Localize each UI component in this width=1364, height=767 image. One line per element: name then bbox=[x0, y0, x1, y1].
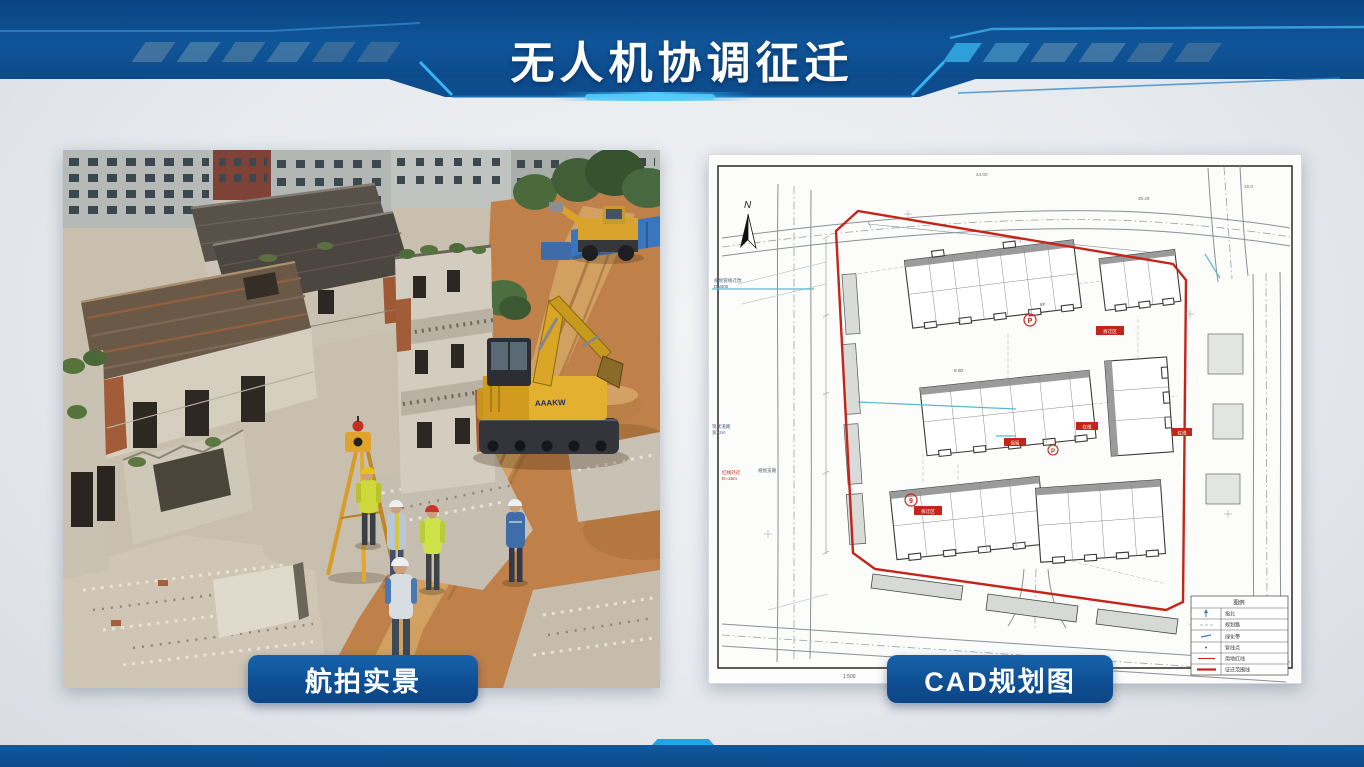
cad-plan-sheet: N bbox=[708, 154, 1302, 684]
footer-bar bbox=[0, 745, 1364, 767]
svg-text:红线: 红线 bbox=[1178, 430, 1187, 436]
page-title: 无人机协调征迁 bbox=[0, 27, 1364, 91]
caption-cad-label: CAD规划图 bbox=[924, 660, 1076, 699]
aerial-photo: AAAKW bbox=[63, 150, 660, 688]
north-label: N bbox=[744, 200, 752, 211]
svg-text:拆迁区: 拆迁区 bbox=[921, 508, 935, 515]
legend-title: 图例 bbox=[1233, 599, 1245, 607]
marker-p2: P bbox=[1051, 449, 1055, 455]
blue-tarp bbox=[541, 242, 571, 260]
svg-text:D=15m: D=15m bbox=[722, 476, 737, 481]
marker-p1: P bbox=[1028, 318, 1033, 325]
marker-box-1: 拆迁区 bbox=[1096, 326, 1124, 335]
svg-text:现状道路: 现状道路 bbox=[712, 423, 731, 430]
marker-box-2: 红线 bbox=[1076, 422, 1098, 430]
marker-box-5: 红线 bbox=[1172, 428, 1192, 436]
svg-text:规划管线迁改: 规划管线迁改 bbox=[714, 277, 742, 284]
svg-text:红线: 红线 bbox=[1083, 424, 1092, 430]
svg-text:宽12m: 宽12m bbox=[712, 429, 726, 436]
svg-text:18.0: 18.0 bbox=[1244, 184, 1253, 189]
svg-text:保留: 保留 bbox=[1011, 440, 1020, 447]
marker-num: 9 bbox=[909, 498, 913, 505]
building-4 bbox=[1105, 357, 1173, 456]
caption-cad: CAD规划图 bbox=[887, 655, 1113, 703]
legend-row-label: 规划路 bbox=[1225, 622, 1240, 629]
caption-aerial: 航拍实景 bbox=[248, 655, 478, 703]
caption-aerial-label: 航拍实景 bbox=[305, 660, 421, 699]
legend-row-label: 用地红线 bbox=[1225, 656, 1245, 663]
header-glow bbox=[555, 92, 755, 101]
legend-row-label: 管线点 bbox=[1225, 645, 1240, 652]
excavator-brand-label: AAAKW bbox=[535, 398, 566, 408]
legend: 图例 指北 规划路 绿化带 管线点 用地红线 征迁范围线 bbox=[1191, 596, 1288, 675]
cad-plan: N bbox=[708, 154, 1302, 684]
aerial-photo-scene: AAAKW bbox=[63, 150, 660, 688]
svg-text:DN300: DN300 bbox=[714, 284, 729, 289]
marker-box-3: 保留 bbox=[1004, 438, 1026, 447]
legend-row-label: 征迁范围线 bbox=[1225, 667, 1250, 674]
svg-text:35.26: 35.26 bbox=[1138, 196, 1150, 201]
header-glow-core bbox=[585, 94, 715, 100]
svg-text:规划支路: 规划支路 bbox=[758, 467, 777, 474]
svg-text:6F: 6F bbox=[1040, 302, 1046, 307]
svg-text:拆迁区: 拆迁区 bbox=[1103, 328, 1117, 335]
building-5 bbox=[890, 476, 1046, 561]
scale-note: 1:500 bbox=[843, 674, 856, 680]
svg-text:红线外迁: 红线外迁 bbox=[722, 469, 741, 476]
legend-row-label: 绿化带 bbox=[1225, 634, 1240, 641]
marker-box-4: 拆迁区 bbox=[914, 506, 942, 515]
svg-text:24.00: 24.00 bbox=[976, 172, 988, 177]
legend-row-label: 指北 bbox=[1225, 611, 1235, 618]
building-6 bbox=[1036, 480, 1166, 565]
svg-text:9.00: 9.00 bbox=[954, 368, 963, 373]
